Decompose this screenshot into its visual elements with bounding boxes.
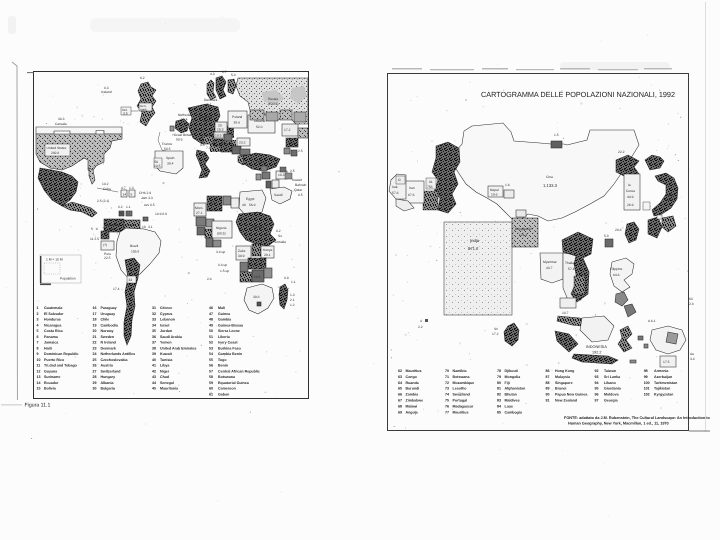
svg-text:29.1: 29.1 <box>264 253 271 257</box>
svg-text:19.3: 19.3 <box>278 173 285 177</box>
svg-text:8: 8 <box>37 346 39 350</box>
svg-text:80.6: 80.6 <box>203 119 210 123</box>
svg-text:1.2: 1.2 <box>290 303 295 307</box>
svg-text:68: 68 <box>398 404 402 408</box>
svg-text:19: 19 <box>142 225 146 229</box>
svg-text:Bhutan: Bhutan <box>505 393 517 397</box>
svg-text:Georgia: Georgia <box>604 399 619 403</box>
svg-text:155.8: 155.8 <box>131 250 139 254</box>
svg-text:17.2: 17.2 <box>284 128 291 132</box>
svg-text:Norway: Norway <box>101 329 114 333</box>
svg-text:Turkmenistan: Turkmenistan <box>654 381 677 385</box>
svg-text:26.3: 26.3 <box>209 201 216 205</box>
svg-text:65: 65 <box>398 387 402 391</box>
svg-text:20.8: 20.8 <box>615 228 622 232</box>
svg-text:47: 47 <box>209 312 213 316</box>
svg-text:54: 54 <box>209 352 213 356</box>
svg-text:Canada: Canada <box>55 122 67 126</box>
svg-text:Costa Rica: Costa Rica <box>44 329 64 333</box>
svg-text:So: So <box>278 234 282 238</box>
svg-text:89: 89 <box>546 387 550 391</box>
svg-text:sev 0.5: sev 0.5 <box>144 203 155 207</box>
svg-text:33: 33 <box>152 318 156 322</box>
svg-text:United States: United States <box>47 146 67 150</box>
svg-text:Benin: Benin <box>218 364 228 368</box>
svg-text:3.4 up: 3.4 up <box>216 250 225 254</box>
svg-text:10.9 8.9: 10.9 8.9 <box>155 212 167 216</box>
svg-text:91: 91 <box>546 399 550 403</box>
svg-text:Tunisia: Tunisia <box>160 358 173 362</box>
svg-text:27.1: 27.1 <box>196 211 203 215</box>
svg-text:Guatemala: Guatemala <box>44 306 63 310</box>
svg-text:Libya: Libya <box>160 364 170 368</box>
svg-text:Djibouti: Djibouti <box>505 369 518 373</box>
svg-text:85: 85 <box>497 410 501 414</box>
svg-text:3.4: 3.4 <box>690 357 695 361</box>
svg-text:94: 94 <box>595 381 599 385</box>
svg-text:Denmark: Denmark <box>204 98 218 102</box>
svg-text:98: 98 <box>644 369 648 373</box>
svg-text:64: 64 <box>398 381 402 385</box>
svg-text:59: 59 <box>209 381 213 385</box>
svg-text:0.9: 0.9 <box>284 276 289 280</box>
svg-text:1.1: 1.1 <box>126 205 131 209</box>
svg-text:Moro.: Moro. <box>195 206 204 210</box>
svg-text:61: 61 <box>209 392 213 396</box>
svg-text:40: 40 <box>152 358 156 362</box>
svg-text:72: 72 <box>445 381 449 385</box>
svg-text:5: 5 <box>37 329 39 333</box>
svg-text:Guyana: Guyana <box>44 369 58 373</box>
svg-text:5: 5 <box>131 193 133 197</box>
svg-text:1: 1 <box>37 306 39 310</box>
svg-text:10.5: 10.5 <box>254 275 261 279</box>
svg-text:Bahrain: Bahrain <box>295 183 307 187</box>
svg-text:22.5: 22.5 <box>104 256 111 260</box>
svg-text:Human Geography, New York, Mac: Human Geography, New York, Macmillan, 1 … <box>568 422 669 426</box>
svg-text:3.1: 3.1 <box>148 225 153 229</box>
svg-text:24: 24 <box>93 352 97 356</box>
svg-text:CH6 2.9: CH6 2.9 <box>139 191 151 195</box>
svg-text:67.6: 67.6 <box>408 193 415 197</box>
svg-text:A 6.1: A 6.1 <box>648 319 656 323</box>
svg-text:Myanmar: Myanmar <box>543 260 558 264</box>
svg-text:34: 34 <box>152 323 156 327</box>
svg-text:17.4: 17.4 <box>113 287 120 291</box>
svg-text:39: 39 <box>152 352 156 356</box>
svg-text:Ivory Coast: Ivory Coast <box>218 341 238 345</box>
svg-text:77: 77 <box>445 410 449 414</box>
svg-text:Nigeria: Nigeria <box>216 226 227 230</box>
svg-text:Switzerland: Switzerland <box>101 369 121 373</box>
svg-text:44: 44 <box>152 381 156 385</box>
svg-text:Jam 3.3: Jam 3.3 <box>141 196 153 200</box>
svg-text:63: 63 <box>398 375 402 379</box>
svg-text:(88.5): (88.5) <box>217 232 226 236</box>
svg-text:74: 74 <box>445 393 449 397</box>
svg-text:56.9: 56.9 <box>249 203 256 207</box>
svg-text:1 M = 10 M: 1 M = 10 M <box>46 258 63 262</box>
svg-text:Corea: Corea <box>626 189 635 193</box>
svg-text:67: 67 <box>398 399 402 403</box>
svg-text:Burkina Faso: Burkina Faso <box>218 346 242 350</box>
svg-text:O: O <box>398 178 401 182</box>
svg-text:Ecuador: Ecuador <box>44 381 59 385</box>
svg-text:30: 30 <box>93 387 97 391</box>
svg-text:63: 63 <box>689 297 693 301</box>
svg-text:6: 6 <box>37 335 39 339</box>
svg-text:10.2: 10.2 <box>102 182 109 186</box>
svg-text:64.6: 64.6 <box>613 273 620 277</box>
svg-text:Egypt: Egypt <box>246 197 255 201</box>
svg-text:Papua New Guinea: Papua New Guinea <box>555 393 588 397</box>
svg-text:23.2: 23.2 <box>239 141 246 145</box>
svg-text:Uruguay: Uruguay <box>101 312 116 316</box>
svg-text:27: 27 <box>93 369 97 373</box>
svg-text:57.4: 57.4 <box>568 267 575 271</box>
svg-text:Hungary: Hungary <box>101 375 116 379</box>
svg-text:43.7: 43.7 <box>546 266 553 270</box>
svg-text:2.4: 2.4 <box>207 277 212 281</box>
svg-text:101: 101 <box>644 387 650 391</box>
svg-text:Albania: Albania <box>101 381 115 385</box>
svg-text:50: 50 <box>209 329 213 333</box>
svg-text:Giordania: Giordania <box>604 387 622 391</box>
svg-text:39.9: 39.9 <box>238 254 245 258</box>
svg-text:Mauritius: Mauritius <box>406 369 422 373</box>
svg-text:83: 83 <box>497 399 501 403</box>
svg-text:1.6: 1.6 <box>505 183 510 187</box>
svg-text:15.3: 15.3 <box>217 128 224 132</box>
svg-text:Gambia Benin: Gambia Benin <box>218 352 242 356</box>
svg-text:Libano: Libano <box>604 381 617 385</box>
svg-text:51: 51 <box>209 335 213 339</box>
svg-text:45: 45 <box>152 387 156 391</box>
svg-text:39.4: 39.4 <box>167 162 174 166</box>
svg-text:42: 42 <box>152 369 156 373</box>
svg-text:3: 3 <box>37 318 39 322</box>
svg-text:71: 71 <box>445 375 449 379</box>
svg-text:Bolivia: Bolivia <box>44 387 57 391</box>
svg-text:20: 20 <box>93 329 97 333</box>
svg-text:Denmark: Denmark <box>101 346 116 350</box>
svg-text:Swaziland: Swaziland <box>453 393 470 397</box>
svg-text:99: 99 <box>644 375 648 379</box>
svg-text:18: 18 <box>93 318 97 322</box>
svg-text:Maldives: Maldives <box>505 399 520 403</box>
svg-text:100: 100 <box>644 381 650 385</box>
svg-text:19: 19 <box>93 323 97 327</box>
svg-text:Moldova: Moldova <box>604 393 620 397</box>
svg-text:124.8: 124.8 <box>665 198 673 202</box>
svg-text:United Arab Emirates: United Arab Emirates <box>160 346 196 350</box>
svg-text:2.5: 2.5 <box>298 149 303 153</box>
svg-text:8.7: 8.7 <box>222 70 227 74</box>
svg-text:Nepal: Nepal <box>490 188 499 192</box>
svg-text:93: 93 <box>595 375 599 379</box>
svg-text:92: 92 <box>595 369 599 373</box>
svg-text:7.9: 7.9 <box>206 146 211 150</box>
svg-text:Mongolia: Mongolia <box>505 375 522 379</box>
svg-text:Azerbaijan: Azerbaijan <box>654 375 672 379</box>
svg-text:France: France <box>162 142 172 146</box>
svg-text:871.2: 871.2 <box>468 246 479 251</box>
svg-text:Russia: Russia <box>268 97 278 101</box>
svg-text:Kyrgyzstan: Kyrgyzstan <box>654 393 673 397</box>
svg-text:Brazil: Brazil <box>130 244 139 248</box>
svg-text:Fiji: Fiji <box>505 381 510 385</box>
svg-text:11: 11 <box>37 364 41 368</box>
svg-text:2.1: 2.1 <box>290 298 295 302</box>
svg-text:12: 12 <box>37 369 41 373</box>
svg-text:Poland: Poland <box>232 115 242 119</box>
svg-text:30.3: 30.3 <box>58 117 65 121</box>
svg-text:Burundi: Burundi <box>406 387 420 391</box>
svg-text:Irak: Irak <box>392 185 398 189</box>
svg-text:57: 57 <box>209 369 213 373</box>
svg-text:Malaysia: Malaysia <box>555 375 571 379</box>
svg-text:97: 97 <box>595 399 599 403</box>
svg-text:6.2: 6.2 <box>140 76 145 80</box>
svg-text:Zimbabwe: Zimbabwe <box>406 399 424 403</box>
svg-text:Tajikistan: Tajikistan <box>654 387 670 391</box>
svg-text:Niger: Niger <box>160 369 170 373</box>
svg-text:758: 758 <box>427 185 433 189</box>
svg-text:73: 73 <box>445 387 449 391</box>
svg-text:35: 35 <box>152 329 156 333</box>
svg-text:36: 36 <box>152 335 156 339</box>
svg-text:58: 58 <box>209 375 213 379</box>
svg-text:16: 16 <box>93 306 97 310</box>
svg-text:23: 23 <box>93 346 97 350</box>
svg-text:69: 69 <box>398 410 402 414</box>
svg-text:Mauritius: Mauritius <box>453 410 469 414</box>
svg-text:Guinea: Guinea <box>218 312 231 316</box>
svg-text:Sweden: Sweden <box>101 335 115 339</box>
svg-text:Hong Kong: Hong Kong <box>555 369 574 373</box>
svg-text:2.2: 2.2 <box>418 325 423 329</box>
svg-text:Armenia: Armenia <box>654 369 669 373</box>
svg-text:1.1: 1.1 <box>291 280 296 284</box>
svg-text:Austria: Austria <box>101 364 114 368</box>
svg-text:Mauritania: Mauritania <box>160 387 179 391</box>
svg-text:Namibia: Namibia <box>453 369 468 373</box>
svg-text:26.9: 26.9 <box>627 203 634 207</box>
svg-text:3.5: 3.5 <box>123 112 128 116</box>
svg-text:62: 62 <box>398 369 402 373</box>
svg-text:1.5 up: 1.5 up <box>220 269 229 273</box>
svg-text:Kenya: Kenya <box>263 248 273 252</box>
svg-text:Paraguay: Paraguay <box>101 306 117 310</box>
svg-text:17: 17 <box>93 312 97 316</box>
svg-text:Nicaragua: Nicaragua <box>44 323 62 327</box>
svg-text:Dominican Republic: Dominican Republic <box>44 352 79 356</box>
svg-text:121.3: 121.3 <box>519 233 527 237</box>
svg-text:Cambogia: Cambogia <box>505 410 523 414</box>
svg-text:Mozambique: Mozambique <box>453 381 475 385</box>
svg-text:95: 95 <box>595 387 599 391</box>
svg-text:Saudi: Saudi <box>274 193 283 197</box>
svg-text:Guinea-Bissau: Guinea-Bissau <box>218 323 243 327</box>
svg-text:Senegal: Senegal <box>160 381 174 385</box>
svg-text:34.1: 34.1 <box>108 227 115 231</box>
svg-text:Bulgaria: Bulgaria <box>101 387 116 391</box>
svg-text:52: 52 <box>209 341 213 345</box>
svg-text:55: 55 <box>209 358 213 362</box>
svg-text:13: 13 <box>37 375 41 379</box>
svg-text:Angola: Angola <box>406 410 419 414</box>
svg-text:18.7: 18.7 <box>562 311 569 315</box>
svg-text:33: 33 <box>129 278 133 282</box>
svg-text:Spain: Spain <box>166 156 175 160</box>
svg-text:Liberia: Liberia <box>218 335 231 339</box>
svg-text:48: 48 <box>209 318 213 322</box>
svg-text:4.7: 4.7 <box>121 186 126 190</box>
svg-text:87: 87 <box>546 375 550 379</box>
svg-text:0.2: 0.2 <box>276 229 281 233</box>
svg-text:Turkey: Turkey <box>256 160 266 164</box>
svg-text:19.6: 19.6 <box>491 193 498 197</box>
svg-text:57.6: 57.6 <box>392 191 399 195</box>
svg-text:0.4 up: 0.4 up <box>218 263 227 267</box>
svg-text:Saudi Arabia: Saudi Arabia <box>160 335 183 339</box>
svg-text:(?): (?) <box>103 243 107 247</box>
svg-text:46: 46 <box>209 306 213 310</box>
svg-text:21: 21 <box>93 335 97 339</box>
svg-text:38: 38 <box>152 346 156 350</box>
svg-text:292.8: 292.8 <box>51 151 59 155</box>
svg-text:5: 5 <box>91 227 93 231</box>
svg-text:37: 37 <box>152 341 156 345</box>
svg-text:39.8: 39.8 <box>253 295 260 299</box>
svg-text:Puerto Rico: Puerto Rico <box>44 358 65 362</box>
svg-text:Afghanistan: Afghanistan <box>505 387 526 391</box>
svg-text:Suriname: Suriname <box>44 375 60 379</box>
svg-text:Bangladesh: Bangladesh <box>515 227 533 231</box>
svg-text:75: 75 <box>445 399 449 403</box>
svg-text:Kuwait: Kuwait <box>160 352 173 356</box>
svg-text:Central African Republic: Central African Republic <box>218 369 260 373</box>
svg-text:58.5: 58.5 <box>164 147 171 151</box>
svg-text:60: 60 <box>209 387 213 391</box>
svg-text:Panama: Panama <box>44 335 59 339</box>
svg-text:Ruanda: Ruanda <box>406 381 420 385</box>
svg-text:Mali: Mali <box>218 306 225 310</box>
svg-text:79: 79 <box>497 375 501 379</box>
svg-text:5.0: 5.0 <box>231 73 236 77</box>
svg-text:10.5: 10.5 <box>154 164 161 168</box>
svg-text:15: 15 <box>37 387 41 391</box>
svg-text:4.5: 4.5 <box>200 143 205 147</box>
svg-text:2.5 (2.1): 2.5 (2.1) <box>97 199 109 203</box>
svg-text:11: 11 <box>127 212 131 216</box>
svg-text:1,133.3: 1,133.3 <box>543 183 558 188</box>
svg-text:4: 4 <box>37 323 39 327</box>
svg-text:Sierra Leone: Sierra Leone <box>218 329 240 333</box>
svg-text:41: 41 <box>152 364 156 368</box>
svg-text:25: 25 <box>93 358 97 362</box>
svg-text:Lesotho: Lesotho <box>453 387 468 391</box>
svg-text:Qatar: Qatar <box>294 188 303 192</box>
svg-text:Gabon: Gabon <box>218 392 229 396</box>
svg-text:Greece: Greece <box>160 306 172 310</box>
svg-text:4.3: 4.3 <box>210 72 215 76</box>
svg-text:81: 81 <box>497 387 501 391</box>
svg-text:Chile: Chile <box>101 318 110 322</box>
svg-text:INDONESIA: INDONESIA <box>586 345 607 349</box>
svg-text:53: 53 <box>209 346 213 350</box>
svg-text:2: 2 <box>37 312 39 316</box>
svg-text:2.8: 2.8 <box>689 302 694 306</box>
svg-text:Kuwait: Kuwait <box>292 178 302 182</box>
svg-text:102: 102 <box>644 393 650 397</box>
svg-text:9: 9 <box>37 352 39 356</box>
svg-text:India: India <box>470 238 480 243</box>
svg-text:Sri: Sri <box>494 327 498 331</box>
svg-text:Lebanon: Lebanon <box>160 318 175 322</box>
svg-text:11 2.5: 11 2.5 <box>90 237 99 241</box>
svg-text:Botswana: Botswana <box>453 375 471 379</box>
svg-text:76: 76 <box>445 404 449 408</box>
svg-text:El Salvador: El Salvador <box>44 312 64 316</box>
svg-text:CARTOGRAMMA DELLE POPOLAZIONI: CARTOGRAMMA DELLE POPOLAZIONI NAZIONALI,… <box>481 90 675 99</box>
svg-text:Cyprus: Cyprus <box>160 312 172 316</box>
svg-text:70: 70 <box>445 369 449 373</box>
svg-text:Cina: Cina <box>546 175 553 179</box>
svg-text:10: 10 <box>37 358 41 362</box>
svg-text:Iceland: Iceland <box>101 90 112 94</box>
svg-text:38.6: 38.6 <box>234 121 241 125</box>
svg-text:Malawi: Malawi <box>406 404 418 408</box>
svg-text:21.5: 21.5 <box>288 141 295 145</box>
svg-text:Laos: Laos <box>505 404 513 408</box>
svg-text:Sri Lanka: Sri Lanka <box>604 375 621 379</box>
svg-text:66: 66 <box>398 393 402 397</box>
svg-text:Tri.dad and Tobago: Tri.dad and Tobago <box>44 364 78 368</box>
svg-text:Zambia: Zambia <box>406 393 420 397</box>
svg-text:Singapore: Singapore <box>555 381 573 385</box>
svg-text:N Ireland: N Ireland <box>101 341 116 345</box>
svg-text:Botswana: Botswana <box>218 375 236 379</box>
svg-text:Czechoslovakia: Czechoslovakia <box>101 358 129 362</box>
svg-text:84: 84 <box>497 404 501 408</box>
svg-text:17.2: 17.2 <box>492 332 499 336</box>
svg-text:Togo: Togo <box>218 358 227 362</box>
svg-text:Jamaica: Jamaica <box>44 341 59 345</box>
svg-text:Equatorial Guinea: Equatorial Guinea <box>218 381 250 385</box>
svg-text:80: 80 <box>497 381 501 385</box>
svg-text:5.8: 5.8 <box>604 234 609 238</box>
svg-text:88: 88 <box>546 381 550 385</box>
svg-text:Taiwan: Taiwan <box>604 369 616 373</box>
svg-text:31: 31 <box>152 306 156 310</box>
svg-text:78: 78 <box>497 369 501 373</box>
svg-text:1.3: 1.3 <box>129 186 134 190</box>
svg-text:0.2: 0.2 <box>118 205 123 209</box>
svg-text:la: la <box>628 183 631 187</box>
svg-text:90: 90 <box>546 393 550 397</box>
svg-text:26: 26 <box>93 364 97 368</box>
svg-text:81: 81 <box>429 180 433 184</box>
svg-text:Chad: Chad <box>160 375 169 379</box>
svg-text:Portugal: Portugal <box>453 399 468 403</box>
svg-text:96: 96 <box>595 393 599 397</box>
svg-text:29: 29 <box>93 381 97 385</box>
svg-text:Population: Population <box>60 277 76 281</box>
svg-text:Yemen: Yemen <box>160 341 172 345</box>
svg-text:192.2: 192.2 <box>592 351 602 355</box>
svg-text:49: 49 <box>209 323 213 327</box>
